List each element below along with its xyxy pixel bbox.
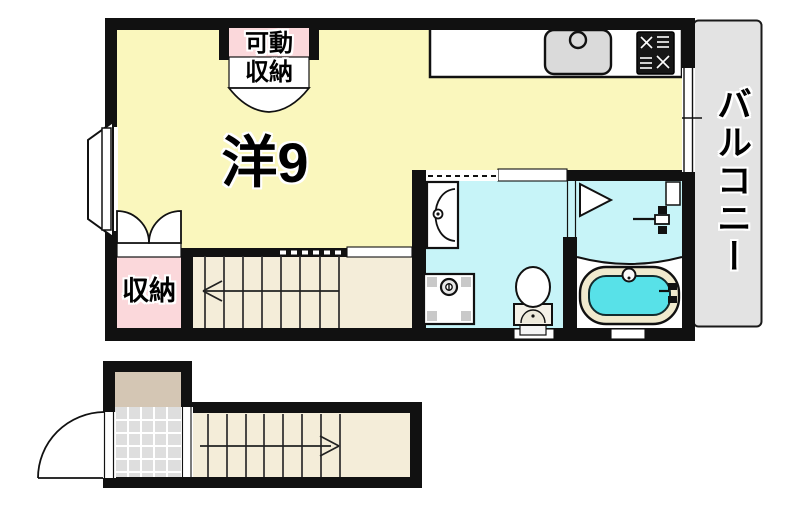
toilet-icon [514,267,552,335]
balcony-area [694,21,762,327]
wall-top [105,18,695,30]
hall-wall-top [192,402,422,413]
stair-opening [347,247,412,257]
closet-stub-right [309,18,319,60]
bath-wall-top-right [567,170,682,181]
genkan-threshold [181,407,193,477]
gas-stove-icon [637,32,674,74]
bath-divider-wall [563,237,577,328]
closet-divider-wall [181,248,193,328]
entry-porch-floor [115,372,181,407]
lower-stairs-floor [192,413,410,477]
kitchen-counter [430,26,682,77]
movable-storage-back [229,28,309,57]
floorplan-drawing [0,0,800,507]
entrance-door-icon [38,412,116,478]
bath-wall-window [666,182,680,205]
floorplan: 洋9 可動 収納 収納 バルコニー [0,0,800,507]
porch-wall-top [103,361,192,372]
movable-storage-closet [229,28,309,112]
porch-wall-right [181,361,192,407]
sink-faucet-icon [570,32,586,48]
storage-closet-floor [117,257,181,328]
lower-floor [38,361,422,488]
stair-wall-top [181,248,347,257]
vanity-sink-icon [427,182,458,248]
bathtub-icon [580,267,679,324]
wall-right [682,18,695,341]
sanitary-doorway [498,169,567,181]
closet-stub-left [219,18,229,60]
movable-storage-front [229,57,309,88]
wall-bottom [105,328,695,341]
porch-wall-left [103,361,115,413]
genkan-tile-floor [115,407,181,477]
bay-window-icon [88,122,118,237]
vanity-dashed-line [426,170,498,181]
bath-window-bottom [611,329,645,339]
hall-wall-right [410,402,422,488]
hall-wall-bottom [103,477,422,488]
washing-machine-pan-icon [424,274,474,324]
